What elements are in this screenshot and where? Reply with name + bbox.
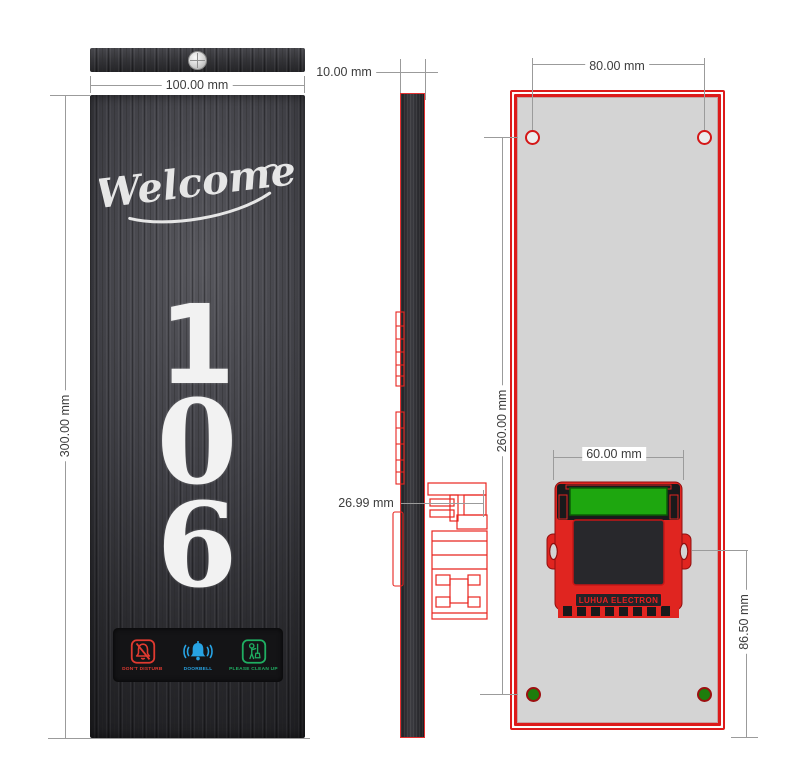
top-view-panel xyxy=(90,48,305,72)
dim-leader xyxy=(692,550,748,551)
dim-module-width: 60.00 mm xyxy=(582,447,646,461)
button-panel: DON'T DISTURB DOORBELL xyxy=(113,628,283,682)
bell-slash-icon xyxy=(129,638,157,665)
product-drawing: 100.00 mm Welcome 1 0 6 DON'T DISTURB xyxy=(0,0,806,772)
mounting-hole-bottom-left xyxy=(526,687,541,702)
back-panel-surface xyxy=(514,94,721,726)
dim-tick xyxy=(425,59,426,100)
please-clean-up-button: PLEASE CLEAN UP xyxy=(228,638,280,672)
button-label: DON'T DISTURB xyxy=(122,667,163,672)
dim-tick xyxy=(480,694,518,695)
dim-tick xyxy=(704,58,705,130)
dim-panel-width: 100.00 mm xyxy=(162,78,233,92)
dim-tick xyxy=(483,490,484,517)
dim-tick xyxy=(553,450,554,480)
dim-hole-spacing-horizontal: 80.00 mm xyxy=(585,59,649,73)
mounting-hole-bottom-right xyxy=(697,687,712,702)
doorbell-button: DOORBELL xyxy=(172,638,224,672)
side-connector-blocks xyxy=(390,308,406,590)
do-not-disturb-button: DON'T DISTURB xyxy=(117,638,169,672)
front-view-panel: Welcome 1 0 6 DON'T DISTURB xyxy=(90,95,305,738)
dim-line xyxy=(401,503,483,504)
module-label: LUHUA ELECTRON xyxy=(575,593,662,607)
dim-mount-depth: 26.99 mm xyxy=(334,496,398,510)
housekeeping-icon xyxy=(240,638,268,665)
dim-tick xyxy=(484,137,518,138)
dim-module-bottom-offset: 86.50 mm xyxy=(737,590,751,654)
dim-tick xyxy=(731,737,758,738)
dim-tick xyxy=(48,738,310,739)
welcome-script: Welcome xyxy=(99,144,295,240)
dim-hole-spacing-vertical: 260.00 mm xyxy=(495,386,509,457)
dim-line xyxy=(368,72,438,73)
doorbell-icon xyxy=(182,638,214,665)
mounting-hole-top-right xyxy=(697,130,712,145)
dim-tick xyxy=(532,58,533,130)
button-label: DOORBELL xyxy=(184,667,213,672)
screw-icon xyxy=(188,51,207,70)
dim-panel-thickness: 10.00 mm xyxy=(312,65,376,79)
dim-tick xyxy=(50,95,90,96)
dim-tick xyxy=(683,450,684,480)
mounting-hole-top-left xyxy=(525,130,540,145)
dim-tick xyxy=(304,76,305,93)
button-label: PLEASE CLEAN UP xyxy=(229,667,278,672)
svg-text:Welcome: Welcome xyxy=(99,147,295,218)
room-number-digit: 6 xyxy=(157,478,238,614)
dim-panel-height: 300.00 mm xyxy=(58,391,72,462)
side-mount-bracket xyxy=(424,479,490,621)
back-view-panel xyxy=(510,90,725,730)
